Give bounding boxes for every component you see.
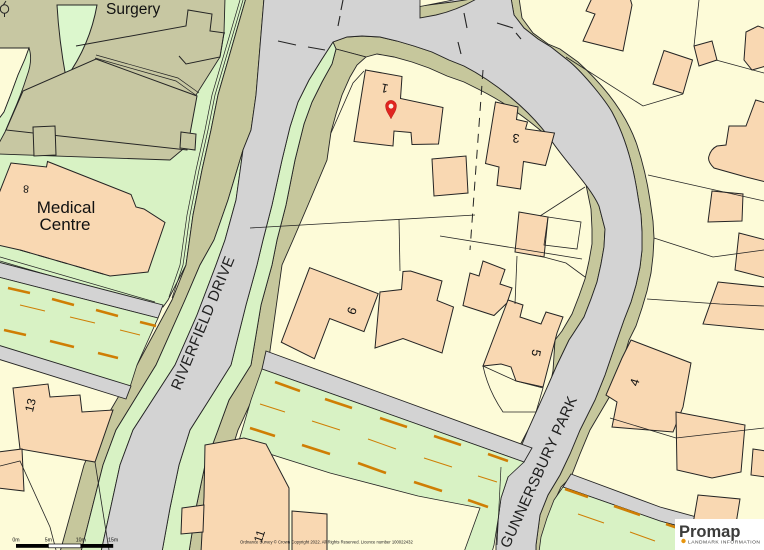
svg-text:0m: 0m [12,538,19,544]
svg-text:Ordnance Survey © Crown Copyri: Ordnance Survey © Crown Copyright 2022. … [240,540,413,545]
svg-text:15m: 15m [108,538,118,544]
svg-text:8: 8 [23,182,30,194]
svg-text:3: 3 [512,131,520,145]
svg-text:LANDMARK INFORMATION: LANDMARK INFORMATION [688,540,760,546]
svg-text:5m: 5m [45,538,52,544]
svg-text:10m: 10m [76,538,86,544]
svg-text:Promap: Promap [679,523,740,541]
svg-text:Surgery: Surgery [106,1,161,18]
svg-text:Centre: Centre [39,215,90,234]
